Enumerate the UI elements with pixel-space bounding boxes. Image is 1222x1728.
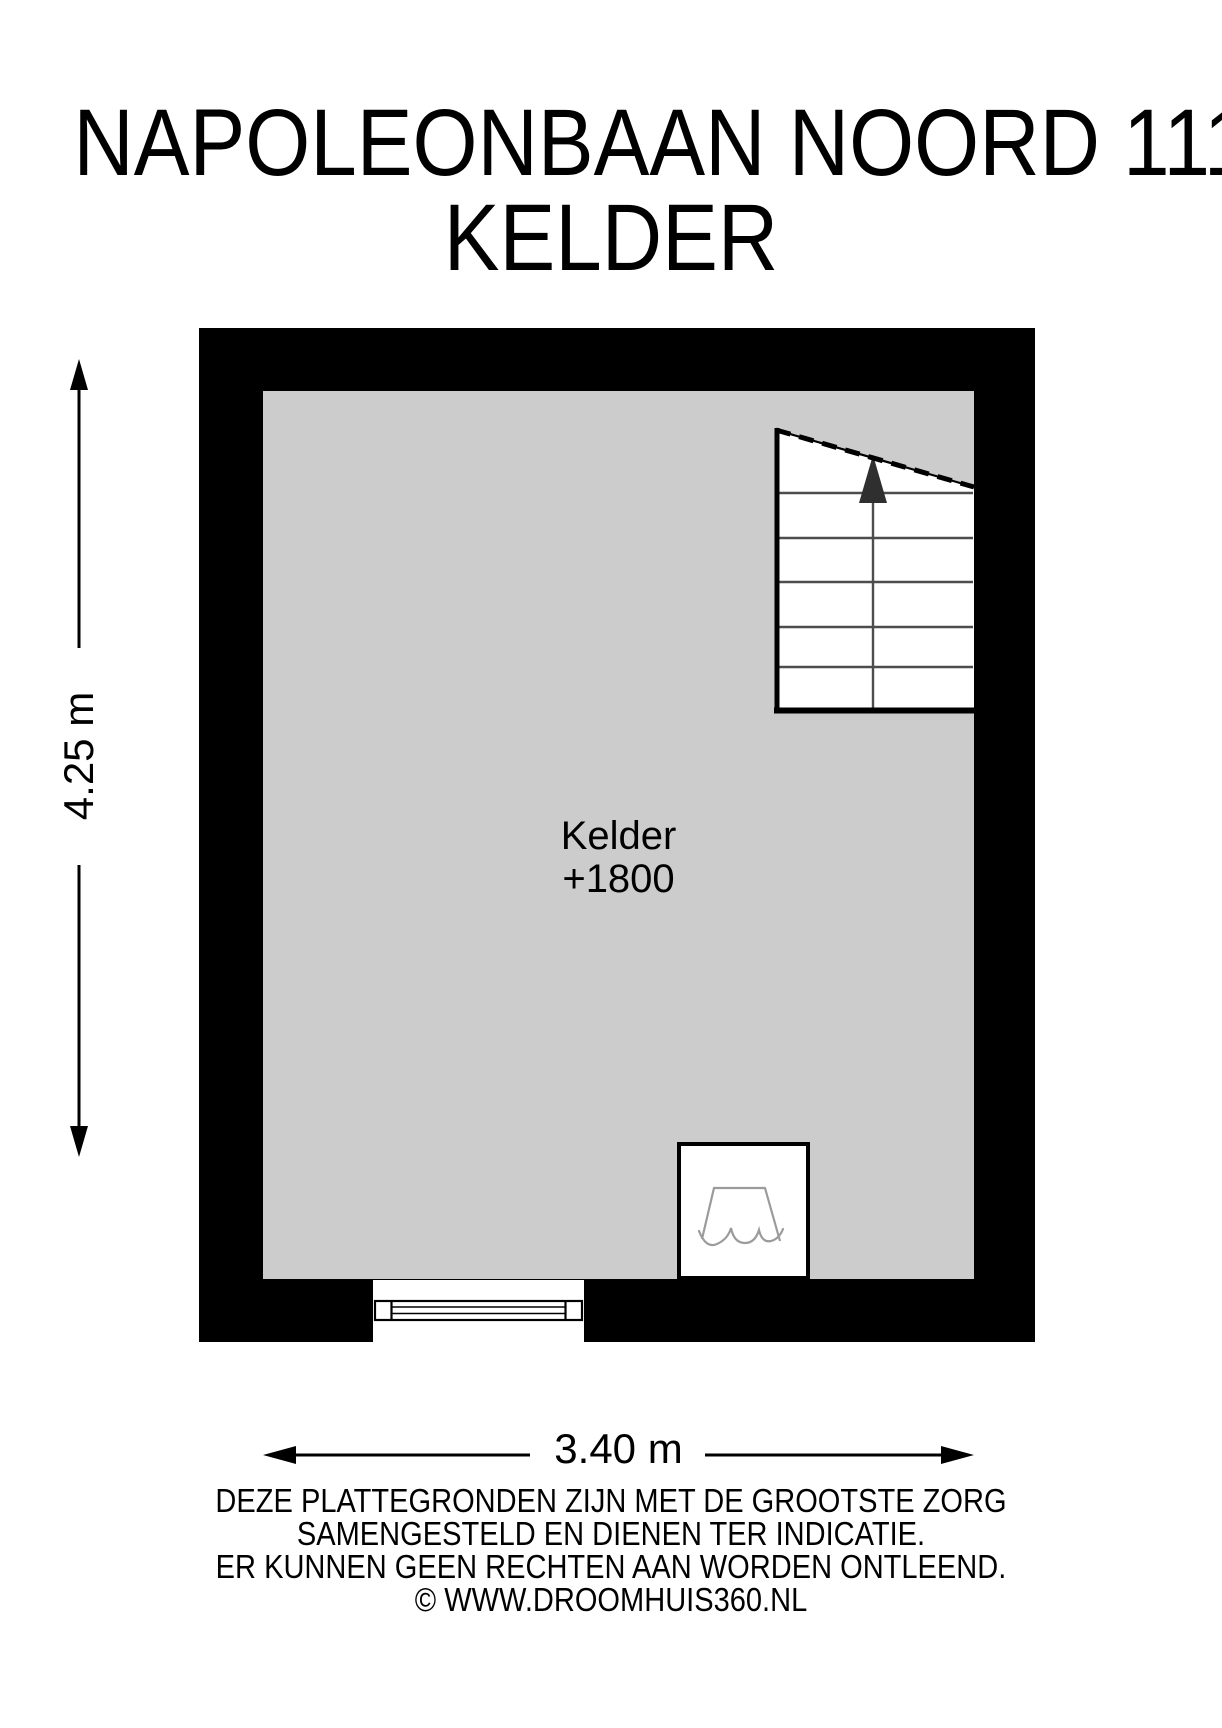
fixture-outline: [679, 1144, 808, 1278]
horizontal-dimension-label: 3.40 m: [263, 1426, 974, 1472]
disclaimer: DEZE PLATTEGRONDEN ZIJN MET DE GROOTSTE …: [0, 1484, 1222, 1616]
disclaimer-line: ER KUNNEN GEEN RECHTEN AAN WORDEN ONTLEE…: [73, 1550, 1148, 1583]
vertical-dimension-label: 4.25 m: [56, 692, 102, 820]
arrowhead-down-icon: [70, 1126, 88, 1157]
room-elevation-label: +1800: [263, 857, 974, 901]
fixture-box: [679, 1144, 808, 1278]
disclaimer-line: DEZE PLATTEGRONDEN ZIJN MET DE GROOTSTE …: [73, 1484, 1148, 1517]
window-opening: [373, 1280, 584, 1342]
window-frame: [375, 1301, 582, 1320]
disclaimer-copyright: © WWW.DROOMHUIS360.NL: [73, 1583, 1148, 1616]
disclaimer-line: SAMENGESTELD EN DIENEN TER INDICATIE.: [73, 1517, 1148, 1550]
floorplan-page: NAPOLEONBAAN NOORD 111 KELDER: [0, 0, 1222, 1728]
arrowhead-up-icon: [70, 359, 88, 390]
room-label: Kelder: [263, 814, 974, 858]
